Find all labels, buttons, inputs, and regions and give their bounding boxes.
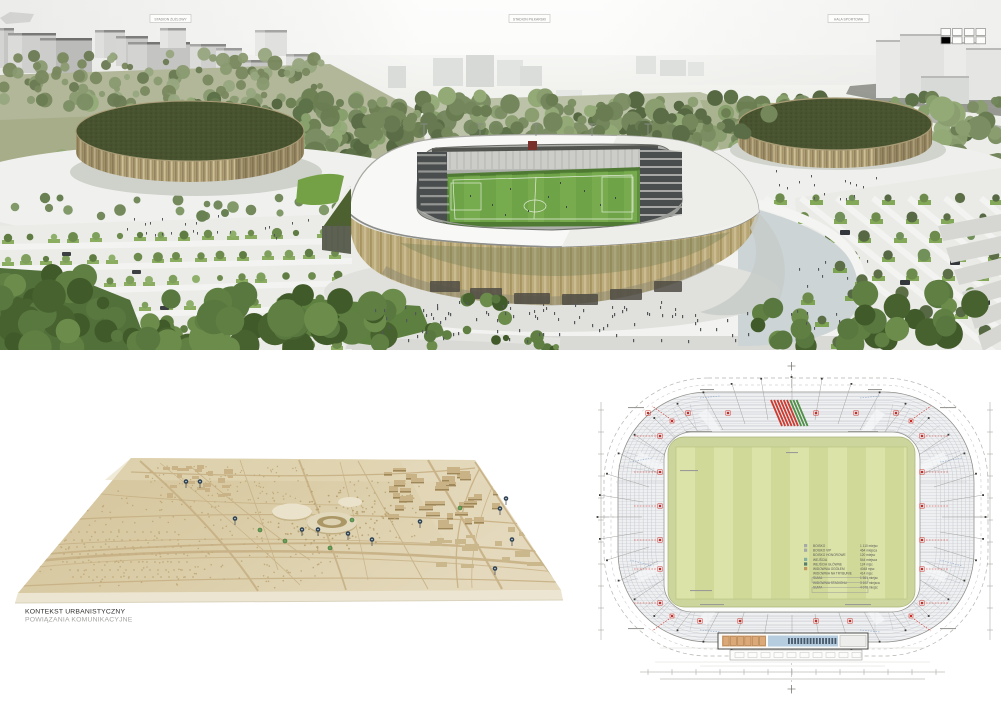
svg-text:STADION PIŁKARSKI: STADION PIŁKARSKI xyxy=(513,17,546,21)
svg-text:120 miejsc: 120 miejsc xyxy=(860,553,876,557)
svg-text:KONTEKST URBANISTYCZNY: KONTEKST URBANISTYCZNY xyxy=(25,609,125,616)
svg-text:POWIĄZANIA KOMUNIKACYJNE: POWIĄZANIA KOMUNIKACYJNE xyxy=(25,617,133,624)
svg-text:3 102 miejsca: 3 102 miejsca xyxy=(860,581,880,585)
svg-text:4048 mjsc: 4048 mjsc xyxy=(860,567,875,571)
svg-text:STADION ŻUŻLOWY: STADION ŻUŻLOWY xyxy=(154,16,187,21)
svg-text:414 mjsc: 414 mjsc xyxy=(860,572,873,576)
svg-text:WIDOWNIA NA TRYBUNIE: WIDOWNIA NA TRYBUNIE xyxy=(813,572,852,576)
svg-text:1 110 miejsc: 1 110 miejsc xyxy=(860,544,878,548)
svg-text:HALA SPORTOWA: HALA SPORTOWA xyxy=(834,17,864,21)
svg-text:WEJŚCIA GŁÓWNE: WEJŚCIA GŁÓWNE xyxy=(813,561,842,566)
svg-text:124 mjsc: 124 mjsc xyxy=(860,562,873,566)
svg-text:WIDOWNIA STADIONU: WIDOWNIA STADIONU xyxy=(813,581,848,585)
svg-text:464 miejsca: 464 miejsca xyxy=(860,549,877,553)
svg-text:1 561 miejsc: 1 561 miejsc xyxy=(860,576,878,580)
svg-text:SUMA: SUMA xyxy=(813,576,823,580)
svg-text:WEJŚCIA: WEJŚCIA xyxy=(813,557,828,562)
svg-text:544 miejsca: 544 miejsca xyxy=(860,558,877,562)
svg-text:BOISKO VIP: BOISKO VIP xyxy=(813,549,831,553)
svg-text:WIDOWNIA OGÓŁEM: WIDOWNIA OGÓŁEM xyxy=(813,566,845,571)
svg-text:BOISKO: BOISKO xyxy=(813,544,826,548)
svg-text:BOISKO HONOROWE: BOISKO HONOROWE xyxy=(813,553,846,557)
